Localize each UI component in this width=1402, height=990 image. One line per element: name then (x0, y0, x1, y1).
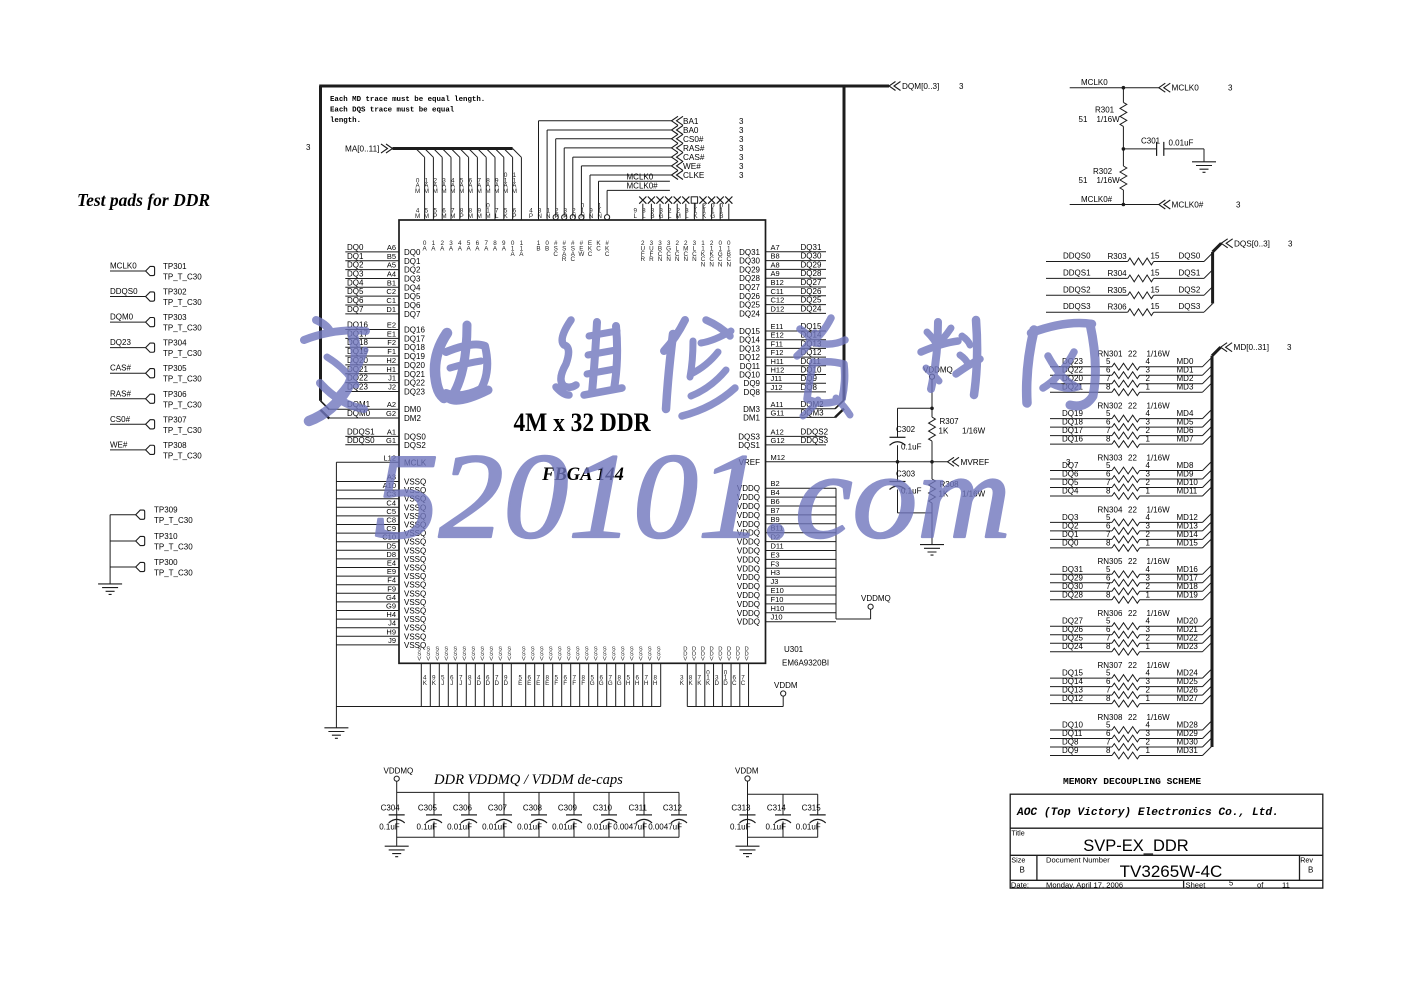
svg-text:22: 22 (1128, 453, 1137, 462)
svg-text:R302: R302 (1093, 167, 1113, 176)
svg-text:TP_T_C30: TP_T_C30 (163, 375, 202, 384)
svg-text:A6: A6 (387, 243, 396, 252)
svg-text:S: S (639, 647, 643, 653)
svg-text:3: 3 (693, 240, 697, 247)
svg-text:D: D (701, 647, 705, 653)
svg-text:S: S (585, 647, 589, 653)
svg-text:8: 8 (486, 177, 490, 184)
svg-text:S: S (498, 647, 502, 653)
svg-text:DQ3: DQ3 (347, 269, 364, 278)
svg-text:DQ7: DQ7 (404, 310, 421, 319)
svg-text:S: S (489, 647, 493, 653)
svg-text:J9: J9 (388, 636, 396, 645)
svg-text:1: 1 (1146, 487, 1151, 496)
svg-text:0.01uF: 0.01uF (517, 823, 542, 832)
svg-text:TP302: TP302 (163, 288, 187, 297)
svg-text:DQ21: DQ21 (404, 370, 425, 379)
svg-text:C313: C313 (731, 804, 751, 813)
svg-text:5: 5 (460, 177, 464, 184)
svg-text:22: 22 (1128, 402, 1137, 411)
svg-text:D: D (709, 647, 713, 653)
svg-text:DQS0: DQS0 (1179, 252, 1201, 261)
svg-text:DDQS0: DDQS0 (110, 287, 138, 296)
svg-text:1/16W: 1/16W (1147, 350, 1171, 359)
svg-text:Title: Title (1011, 829, 1024, 838)
svg-text:3: 3 (651, 208, 655, 215)
svg-text:D: D (727, 647, 731, 653)
svg-text:8: 8 (653, 675, 657, 682)
svg-text:1/16W: 1/16W (1147, 661, 1171, 670)
svg-text:MCLK0: MCLK0 (1081, 78, 1108, 87)
svg-text:3: 3 (739, 126, 744, 135)
svg-text:1: 1 (701, 240, 705, 247)
svg-text:S: S (567, 647, 571, 653)
svg-text:S: S (522, 647, 526, 653)
svg-text:DQ1: DQ1 (347, 252, 364, 261)
svg-text:B5: B5 (387, 252, 396, 261)
svg-text:2: 2 (702, 202, 706, 209)
svg-text:3: 3 (685, 208, 689, 215)
svg-text:C301: C301 (1141, 137, 1161, 146)
svg-text:E: E (588, 240, 592, 247)
svg-text:MD[0..31]: MD[0..31] (1234, 343, 1270, 352)
svg-text:MEMORY DECOUPLING SCHEME: MEMORY DECOUPLING SCHEME (1063, 776, 1201, 787)
svg-text:S: S (480, 647, 484, 653)
svg-text:9: 9 (477, 208, 481, 215)
svg-text:#: # (562, 240, 566, 247)
svg-text:Document Number: Document Number (1046, 855, 1110, 864)
svg-text:VDDMQ: VDDMQ (861, 594, 891, 603)
svg-text:MCLK0: MCLK0 (1172, 84, 1200, 93)
svg-text:0.01uF: 0.01uF (796, 823, 821, 832)
svg-text:3: 3 (442, 177, 446, 184)
svg-text:22: 22 (1128, 557, 1137, 566)
svg-text:H2: H2 (386, 356, 396, 365)
svg-text:11: 11 (1282, 880, 1290, 889)
svg-text:DM0: DM0 (404, 405, 421, 414)
svg-text:3: 3 (1288, 239, 1293, 248)
svg-text:0: 0 (416, 177, 420, 184)
svg-text:DQ12: DQ12 (1062, 694, 1083, 703)
svg-text:9: 9 (504, 675, 508, 682)
svg-text:7: 7 (572, 675, 576, 682)
svg-text:DQ0: DQ0 (347, 243, 364, 252)
svg-text:D12: D12 (771, 304, 785, 313)
svg-text:TP_T_C30: TP_T_C30 (163, 273, 202, 282)
svg-text:C314: C314 (767, 804, 787, 813)
svg-text:J12: J12 (771, 383, 783, 392)
svg-text:DDQS0: DDQS0 (1063, 252, 1091, 261)
svg-text:F11: F11 (771, 339, 783, 348)
svg-text:TP310: TP310 (154, 532, 178, 541)
svg-text:TP_T_C30: TP_T_C30 (163, 426, 202, 435)
svg-text:DQ27: DQ27 (801, 278, 822, 287)
svg-text:TP_T_C30: TP_T_C30 (163, 451, 202, 460)
svg-text:0.1uF: 0.1uF (766, 823, 787, 832)
svg-text:SVP-EX_DDR: SVP-EX_DDR (1083, 837, 1189, 855)
svg-text:B1: B1 (387, 278, 396, 287)
svg-text:S: S (648, 647, 652, 653)
svg-text:MA[0..11]: MA[0..11] (345, 145, 379, 154)
svg-text:22: 22 (1128, 661, 1137, 670)
svg-text:3: 3 (959, 82, 964, 91)
svg-text:CLKE: CLKE (683, 171, 705, 180)
svg-text:6: 6 (527, 675, 531, 682)
svg-text:15: 15 (1151, 302, 1160, 311)
svg-text:R301: R301 (1095, 106, 1115, 115)
svg-text:Sheet: Sheet (1186, 880, 1207, 889)
svg-text:TP303: TP303 (163, 313, 187, 322)
svg-text:TV3265W-4C: TV3265W-4C (1120, 862, 1223, 881)
svg-text:1: 1 (694, 202, 698, 209)
svg-text:22: 22 (1128, 609, 1137, 618)
svg-text:J11: J11 (771, 374, 783, 383)
svg-text:D1: D1 (386, 305, 396, 314)
svg-text:15: 15 (1151, 268, 1160, 277)
svg-text:B: B (1020, 865, 1025, 874)
svg-text:DQ23: DQ23 (110, 338, 131, 347)
svg-text:2: 2 (684, 240, 688, 247)
svg-text:S: S (462, 647, 466, 653)
svg-text:CAS#: CAS# (683, 153, 705, 162)
svg-text:0.01uF: 0.01uF (1169, 139, 1194, 148)
svg-text:C315: C315 (802, 804, 822, 813)
svg-text:S: S (603, 647, 607, 653)
svg-text:8: 8 (1106, 487, 1111, 496)
svg-text:DQS[0..3]: DQS[0..3] (1234, 239, 1270, 248)
svg-text:0: 0 (711, 202, 715, 209)
svg-text:MCLK0#: MCLK0# (627, 182, 659, 191)
svg-text:2: 2 (440, 240, 444, 247)
svg-text:9: 9 (432, 675, 436, 682)
svg-text:MD31: MD31 (1177, 746, 1199, 755)
svg-text:0.0047uF: 0.0047uF (648, 823, 682, 832)
svg-text:7: 7 (451, 208, 455, 215)
svg-text:DQ24: DQ24 (739, 309, 760, 318)
svg-text:1/16W: 1/16W (1147, 713, 1171, 722)
svg-text:3: 3 (1228, 84, 1233, 93)
svg-text:S: S (549, 647, 553, 653)
svg-text:7: 7 (644, 675, 648, 682)
svg-text:5: 5 (518, 675, 522, 682)
svg-text:6: 6 (599, 675, 603, 682)
svg-text:CS0#: CS0# (110, 415, 131, 424)
svg-text:E1: E1 (387, 329, 396, 338)
svg-text:TP304: TP304 (163, 339, 187, 348)
svg-text:S: S (426, 647, 430, 653)
svg-text:8: 8 (545, 675, 549, 682)
svg-text:MD27: MD27 (1177, 694, 1199, 703)
svg-text:of: of (1257, 880, 1264, 889)
svg-text:4: 4 (458, 240, 462, 247)
svg-text:A4: A4 (387, 269, 396, 278)
svg-text:DQS2: DQS2 (1179, 285, 1201, 294)
svg-text:VDDQ: VDDQ (737, 600, 760, 609)
svg-text:7: 7 (495, 208, 499, 215)
svg-text:Each MD trace must be equal le: Each MD trace must be equal length. (330, 96, 485, 104)
svg-text:1: 1 (520, 240, 524, 247)
svg-text:4: 4 (423, 675, 427, 682)
svg-text:D: D (683, 647, 687, 653)
svg-text:C311: C311 (628, 804, 647, 813)
svg-text:MD7: MD7 (1177, 435, 1194, 444)
svg-text:8: 8 (642, 208, 646, 215)
svg-text:3: 3 (739, 162, 744, 171)
svg-text:J2: J2 (388, 382, 396, 391)
svg-text:DQ2: DQ2 (347, 261, 364, 270)
svg-text:0: 0 (718, 240, 722, 247)
svg-text:F2: F2 (387, 338, 396, 347)
svg-text:MD23: MD23 (1177, 642, 1199, 651)
svg-text:6: 6 (635, 675, 639, 682)
svg-text:6: 6 (450, 675, 454, 682)
svg-text:1: 1 (1146, 746, 1151, 755)
svg-text:S: S (657, 647, 661, 653)
svg-text:B12: B12 (771, 278, 784, 287)
svg-text:5: 5 (626, 675, 630, 682)
svg-text:3: 3 (667, 240, 671, 247)
svg-text:8: 8 (1106, 642, 1111, 651)
svg-text:C310: C310 (593, 804, 613, 813)
svg-text:7: 7 (459, 675, 463, 682)
svg-text:S: S (471, 647, 475, 653)
svg-text:R307: R307 (940, 417, 960, 426)
svg-text:2: 2 (433, 177, 437, 184)
svg-text:F1: F1 (387, 347, 396, 356)
svg-text:WE#: WE# (683, 162, 701, 171)
svg-text:1: 1 (1146, 694, 1151, 703)
svg-text:H10: H10 (771, 604, 785, 613)
svg-text:Test pads for DDR: Test pads for DDR (77, 190, 210, 210)
svg-text:MCLK0: MCLK0 (627, 172, 654, 181)
svg-text:22: 22 (1128, 350, 1137, 359)
svg-text:TP306: TP306 (163, 390, 187, 399)
svg-text:2: 2 (572, 208, 576, 215)
svg-text:G11: G11 (771, 408, 785, 417)
svg-text:TP301: TP301 (163, 262, 187, 271)
svg-text:6: 6 (442, 208, 446, 215)
svg-text:DQ28: DQ28 (1062, 590, 1083, 599)
svg-text:J1: J1 (388, 374, 396, 383)
svg-text:S: S (558, 647, 562, 653)
svg-text:DQ15: DQ15 (739, 327, 760, 336)
svg-text:DQ6: DQ6 (347, 296, 364, 305)
svg-text:7: 7 (495, 675, 499, 682)
svg-text:DQ12: DQ12 (739, 353, 760, 362)
svg-text:2: 2 (710, 240, 714, 247)
svg-text:DQ25: DQ25 (801, 296, 822, 305)
svg-text:DDQS1: DDQS1 (1063, 268, 1091, 277)
svg-text:B8: B8 (771, 252, 780, 261)
svg-text:G2: G2 (386, 409, 396, 418)
svg-text:DDR VDDMQ / VDDM de-caps: DDR VDDMQ / VDDM de-caps (433, 772, 623, 788)
svg-text:1/16W: 1/16W (1147, 557, 1171, 566)
svg-text:5: 5 (467, 240, 471, 247)
svg-text:0: 0 (727, 240, 731, 247)
svg-text:2: 2 (668, 208, 672, 215)
svg-text:4: 4 (477, 675, 481, 682)
svg-text:0.01uF: 0.01uF (482, 823, 507, 832)
svg-text:RAS#: RAS# (110, 389, 131, 398)
svg-text:DQ30: DQ30 (801, 252, 822, 261)
svg-text:3: 3 (650, 240, 654, 247)
svg-text:length.: length. (330, 117, 361, 125)
svg-text:DQ29: DQ29 (739, 265, 760, 274)
svg-text:1: 1 (598, 202, 602, 209)
svg-text:DQ9: DQ9 (1062, 746, 1079, 755)
svg-text:S: S (621, 647, 625, 653)
svg-text:MD3: MD3 (1177, 383, 1194, 392)
svg-text:1: 1 (1146, 538, 1151, 547)
svg-text:8: 8 (1106, 538, 1111, 547)
svg-text:DQ10: DQ10 (739, 371, 760, 380)
svg-text:0.0047uF: 0.0047uF (613, 823, 647, 832)
svg-text:H3: H3 (771, 568, 781, 577)
svg-text:DQS1: DQS1 (1179, 268, 1201, 277)
svg-text:A5: A5 (387, 261, 396, 270)
svg-text:DQ6: DQ6 (404, 301, 421, 310)
svg-text:1: 1 (546, 208, 550, 215)
svg-text:0: 0 (511, 240, 515, 247)
svg-text:0: 0 (724, 669, 728, 676)
svg-text:8: 8 (1106, 694, 1111, 703)
svg-text:DQS3: DQS3 (1179, 302, 1201, 311)
svg-text:DQ14: DQ14 (739, 336, 760, 345)
svg-text:3: 3 (739, 153, 744, 162)
svg-text:Size: Size (1011, 855, 1025, 864)
svg-text:WE#: WE# (110, 440, 128, 449)
svg-text:TP_T_C30: TP_T_C30 (154, 543, 193, 552)
svg-text:1/16W: 1/16W (1097, 115, 1121, 124)
svg-text:DQ29: DQ29 (801, 260, 822, 269)
svg-text:DQ16: DQ16 (404, 326, 425, 335)
svg-text:51: 51 (1079, 115, 1088, 124)
svg-text:DQ11: DQ11 (740, 362, 761, 371)
svg-text:0: 0 (504, 172, 508, 179)
svg-text:Each DQS trace must be equal: Each DQS trace must be equal (330, 107, 455, 115)
svg-text:E12: E12 (771, 331, 784, 340)
svg-text:E2: E2 (387, 321, 396, 330)
svg-text:DQ25: DQ25 (739, 301, 760, 310)
svg-text:TP308: TP308 (163, 441, 187, 450)
svg-text:R304: R304 (1108, 269, 1128, 278)
svg-text:DQ0: DQ0 (1062, 538, 1079, 547)
svg-text:22: 22 (1128, 713, 1137, 722)
svg-text:MCLK0: MCLK0 (110, 262, 137, 271)
svg-text:3: 3 (1287, 343, 1292, 352)
svg-text:E10: E10 (771, 586, 784, 595)
svg-text:R303: R303 (1108, 252, 1128, 261)
svg-text:0: 0 (423, 240, 427, 247)
svg-text:3: 3 (739, 117, 744, 126)
svg-text:15: 15 (1151, 285, 1160, 294)
svg-text:3: 3 (1236, 201, 1241, 210)
svg-text:3: 3 (449, 240, 453, 247)
svg-text:DQ3: DQ3 (404, 274, 421, 283)
svg-text:H12: H12 (771, 366, 785, 375)
svg-text:DQ18: DQ18 (404, 343, 425, 352)
svg-text:TP_T_C30: TP_T_C30 (154, 516, 193, 525)
svg-text:15: 15 (1151, 252, 1160, 261)
svg-text:DQ5: DQ5 (404, 292, 421, 301)
svg-text:VDDQ: VDDQ (737, 573, 760, 582)
svg-text:VDDQ: VDDQ (737, 582, 760, 591)
svg-text:DQ26: DQ26 (739, 292, 760, 301)
svg-text:5: 5 (1229, 879, 1233, 888)
svg-text:#: # (580, 240, 584, 247)
svg-text:7: 7 (741, 675, 745, 682)
svg-text:51: 51 (1079, 176, 1088, 185)
svg-text:C308: C308 (523, 804, 543, 813)
svg-text:DQ28: DQ28 (801, 269, 822, 278)
svg-text:DQ16: DQ16 (1062, 435, 1083, 444)
svg-text:1: 1 (537, 240, 541, 247)
svg-text:MCLK0#: MCLK0# (1172, 201, 1204, 210)
svg-text:VDDQ: VDDQ (737, 564, 760, 573)
svg-text:0.1uF: 0.1uF (379, 823, 400, 832)
svg-text:9: 9 (502, 240, 506, 247)
svg-text:MD11: MD11 (1177, 487, 1198, 496)
svg-text:#: # (571, 240, 575, 247)
svg-text:DQ27: DQ27 (739, 283, 760, 292)
svg-text:TP309: TP309 (154, 506, 178, 515)
svg-text:DDQS3: DDQS3 (1063, 302, 1091, 311)
svg-text:B: B (1308, 865, 1313, 874)
svg-text:7: 7 (484, 240, 488, 247)
svg-text:VDDQ: VDDQ (737, 591, 760, 600)
svg-text:9: 9 (495, 177, 499, 184)
svg-text:DQ31: DQ31 (739, 248, 760, 257)
svg-text:F10: F10 (771, 595, 784, 604)
svg-text:1/16W: 1/16W (1147, 609, 1171, 618)
svg-text:0: 0 (486, 202, 490, 209)
svg-text:5: 5 (441, 675, 445, 682)
svg-text:MD15: MD15 (1177, 538, 1199, 547)
svg-text:4: 4 (451, 177, 455, 184)
svg-text:8: 8 (460, 208, 464, 215)
svg-text:1: 1 (432, 240, 436, 247)
svg-text:DQ1: DQ1 (404, 257, 421, 266)
svg-text:BA0: BA0 (683, 126, 699, 135)
svg-text:2: 2 (677, 208, 681, 215)
svg-text:6: 6 (476, 240, 480, 247)
svg-text:DQ7: DQ7 (347, 305, 364, 314)
svg-text:VDDMQ: VDDMQ (384, 767, 414, 776)
svg-text:MCLK0#: MCLK0# (1081, 195, 1113, 204)
svg-text:520101.com: 520101.com (374, 429, 1011, 564)
svg-text:DQM[0..3]: DQM[0..3] (902, 82, 939, 91)
svg-text:DQM0: DQM0 (110, 313, 134, 322)
svg-text:DQ13: DQ13 (739, 344, 760, 353)
svg-text:7: 7 (477, 177, 481, 184)
svg-text:3: 3 (680, 675, 684, 682)
svg-text:8: 8 (1106, 590, 1111, 599)
svg-text:DQ8: DQ8 (744, 388, 761, 397)
svg-text:1: 1 (1146, 383, 1151, 392)
svg-text:H1: H1 (386, 365, 396, 374)
svg-text:9: 9 (589, 208, 593, 215)
svg-text:8: 8 (1106, 435, 1111, 444)
svg-text:EM6A9320BI: EM6A9320BI (782, 659, 829, 668)
svg-text:Rev: Rev (1300, 855, 1313, 864)
svg-text:0: 0 (581, 202, 585, 209)
svg-text:DQ30: DQ30 (739, 257, 760, 266)
svg-text:C12: C12 (771, 296, 785, 305)
svg-text:DQ26: DQ26 (801, 287, 822, 296)
svg-text:S: S (540, 647, 544, 653)
svg-text:5: 5 (554, 675, 558, 682)
svg-text:7: 7 (608, 675, 612, 682)
